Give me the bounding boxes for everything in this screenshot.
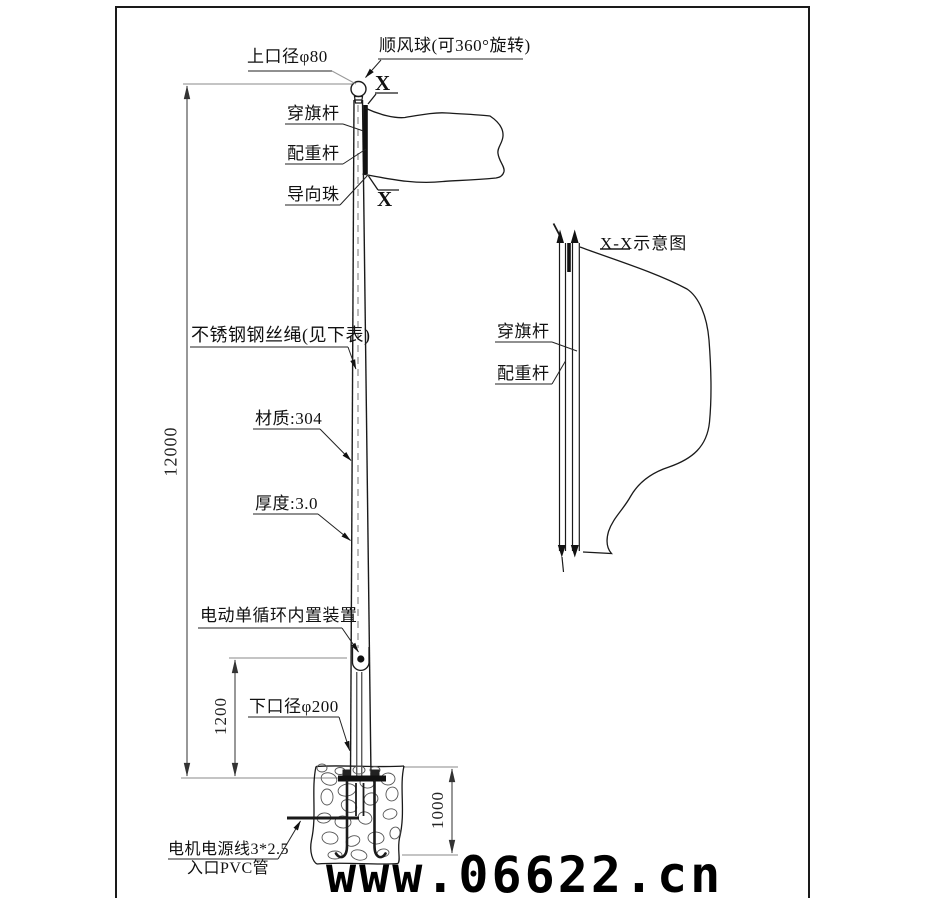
rod-clamp: [567, 243, 571, 272]
label-top-diameter: 上口径φ80: [247, 47, 328, 67]
wind-ball-shape: [351, 82, 366, 97]
pulley-wheel: [357, 655, 364, 662]
label-guide-bead: 导向珠: [287, 185, 340, 205]
anchor-nut-left: [343, 770, 352, 776]
label-thickness: 厚度:3.0: [255, 494, 318, 514]
section-marker-bottom: X: [377, 187, 392, 212]
section-label-counterweight-rod: 配重杆: [497, 364, 550, 384]
dimension-foundation-depth: 1000: [428, 775, 448, 845]
dimension-lower-section: 1200: [211, 681, 231, 751]
drawing-frame: [116, 7, 809, 898]
pole-right-edge: [363, 100, 372, 776]
section-flag-outline: [580, 247, 711, 554]
label-motor-device: 电动单循环内置装置: [200, 606, 358, 626]
flag-rod-bar: [363, 105, 368, 174]
label-bottom-diameter: 下口径φ200: [249, 697, 339, 717]
label-material: 材质:304: [255, 409, 322, 429]
flag-outline: [363, 108, 505, 182]
dimension-pole-height: 12000: [161, 412, 182, 492]
anchor-plate: [338, 776, 386, 782]
section-view: [495, 224, 711, 573]
watermark-text: www.06622.cn: [326, 846, 723, 898]
flagpole-drawing: 上口径φ80 顺风球(可360°旋转) 穿旗杆 配重杆 导向珠 不锈钢钢丝绳(见…: [0, 0, 950, 898]
flagpole: [351, 82, 505, 777]
section-label-flag-rod: 穿旗杆: [497, 322, 550, 342]
label-wire-rope: 不锈钢钢丝绳(见下表): [191, 325, 371, 346]
label-pvc-inlet: 入口PVC管: [187, 860, 269, 878]
label-power-cable: 电机电源线3*2.5: [168, 841, 289, 859]
drawing-linework: [0, 0, 950, 898]
label-wind-ball: 顺风球(可360°旋转): [379, 36, 531, 56]
section-marker-top: X: [375, 71, 390, 96]
label-flag-rod: 穿旗杆: [287, 104, 340, 124]
section-view-title: X-X示意图: [600, 229, 687, 254]
pole-left-edge: [351, 100, 355, 776]
anchor-nut-right: [371, 770, 380, 776]
label-counterweight-rod: 配重杆: [287, 144, 340, 164]
